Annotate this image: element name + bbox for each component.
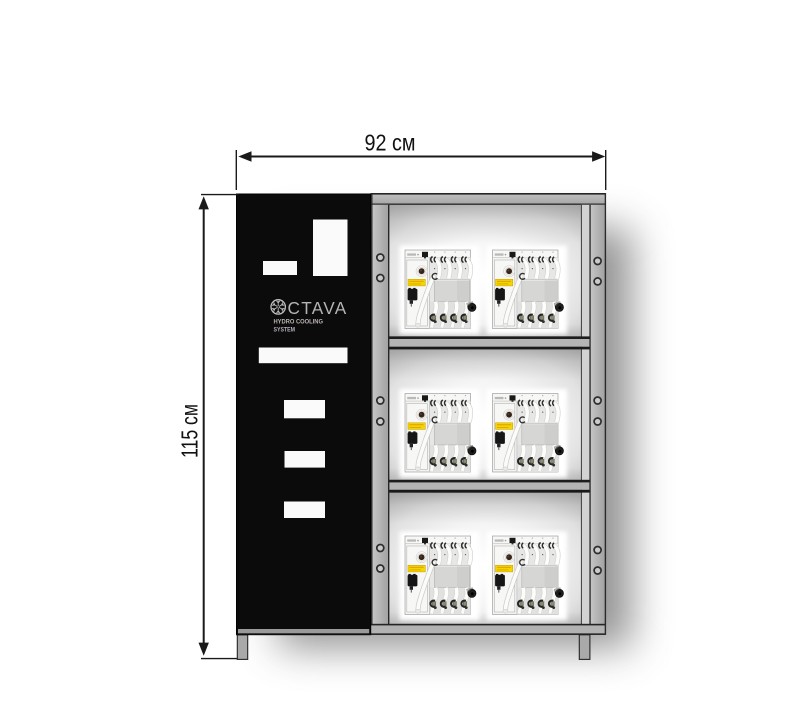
svg-text:115 см: 115 см — [177, 404, 203, 458]
svg-text:HYDRO COOLING: HYDRO COOLING — [274, 319, 324, 326]
svg-text:CTAVA: CTAVA — [288, 298, 348, 318]
svg-text:92 см: 92 см — [365, 130, 416, 156]
svg-text:SYSTEM: SYSTEM — [274, 326, 296, 333]
